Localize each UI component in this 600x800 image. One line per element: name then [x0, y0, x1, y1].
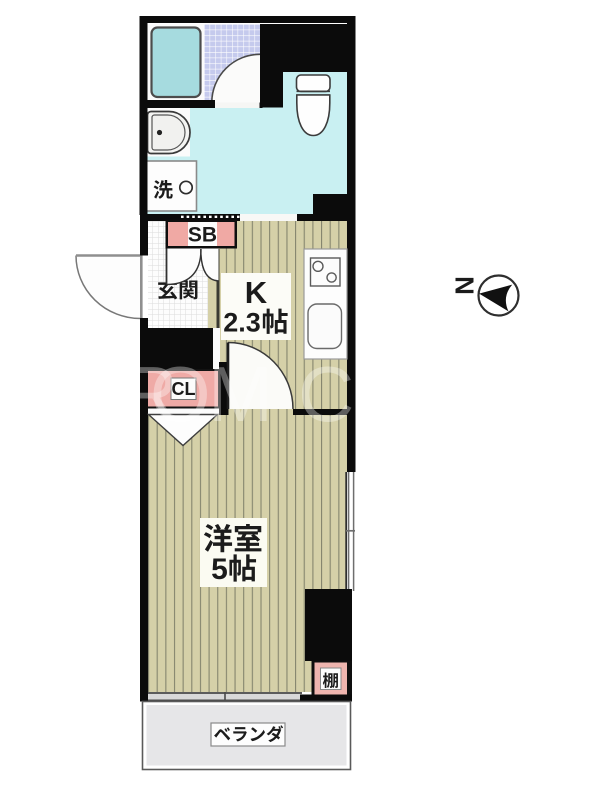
svg-text:C: C [298, 350, 354, 438]
svg-text:2.3: 2.3 [223, 308, 261, 338]
svg-text:SB: SB [188, 224, 217, 247]
svg-text:O: O [150, 350, 211, 438]
svg-text:K: K [245, 275, 268, 310]
svg-text:M: M [208, 350, 273, 438]
svg-text:N: N [450, 276, 480, 295]
svg-text:5: 5 [211, 553, 228, 586]
